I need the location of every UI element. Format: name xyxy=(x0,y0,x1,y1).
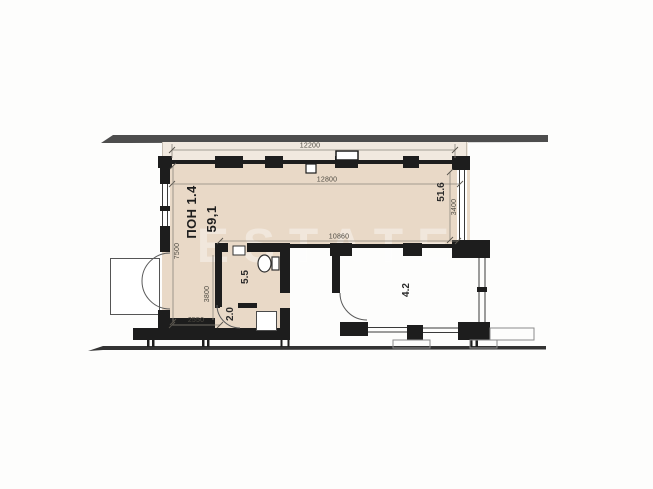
unit-area-label: 59,1 xyxy=(204,206,219,233)
door-leaf-bath xyxy=(233,246,245,255)
dim-top: 12200 xyxy=(300,143,320,150)
dim-width-bottom: 2550 xyxy=(188,317,204,324)
left-porch xyxy=(111,259,160,315)
window-left-upper xyxy=(160,184,170,206)
unit-name-label: ПОН 1.4 xyxy=(184,185,199,239)
dim-width-lower: 10860 xyxy=(329,234,349,241)
window-left-lower xyxy=(160,211,170,226)
entry-area-label: 2.0 xyxy=(225,307,236,321)
site-line-top xyxy=(101,135,548,143)
floorplan-drawing: ESTATE xyxy=(0,0,653,489)
shaft-box-entry xyxy=(257,312,277,331)
floorplan-page: ESTATE xyxy=(0,0,653,489)
door-room42 xyxy=(340,293,367,320)
dim-width-upper: 12800 xyxy=(317,177,337,184)
dim-height-right: 3400 xyxy=(451,199,458,215)
hall-area-label: 51.6 xyxy=(436,182,447,202)
bathroom-area-label: 5.5 xyxy=(240,270,251,284)
toilet-icon xyxy=(258,255,279,272)
window-right-main xyxy=(457,170,467,240)
room42-area-label: 4.2 xyxy=(401,283,412,297)
shaft-box-top xyxy=(336,151,358,160)
window-right-room42 xyxy=(477,258,487,322)
column-stub-top xyxy=(306,164,316,173)
dim-height-bath: 3800 xyxy=(204,286,211,302)
dim-height-left: 7500 xyxy=(174,243,181,259)
